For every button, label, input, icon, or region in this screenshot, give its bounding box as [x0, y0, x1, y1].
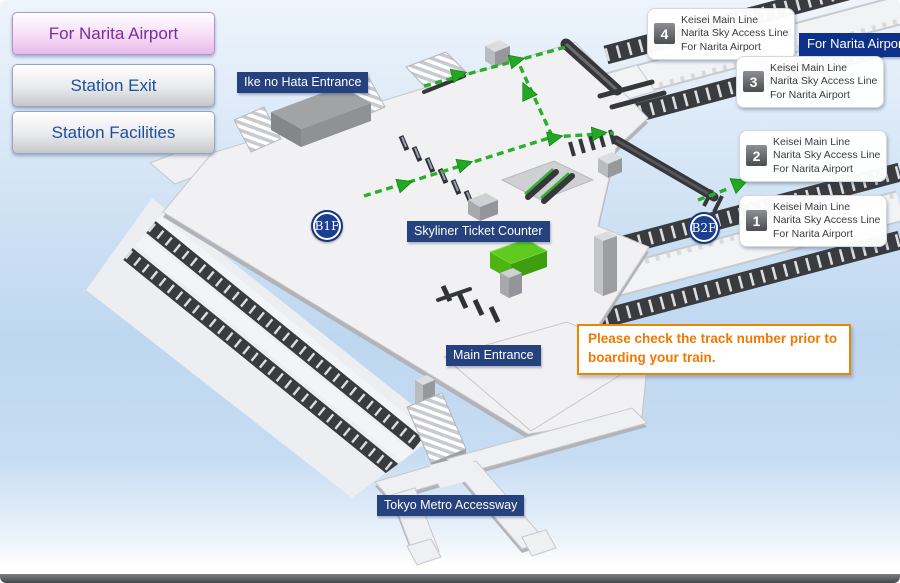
track-line-name: Narita Sky Access Line	[770, 75, 877, 88]
label-main-entrance: Main Entrance	[446, 345, 541, 366]
track-card-2: 2 Keisei Main Line Narita Sky Access Lin…	[739, 130, 887, 182]
track-number-badge: 2	[746, 145, 767, 166]
elevator-box-icon	[500, 268, 522, 298]
track-destination: For Narita Airport	[773, 228, 880, 241]
track-card-3: 3 Keisei Main Line Narita Sky Access Lin…	[736, 56, 884, 108]
label-ike-no-hata-entrance: Ike no Hata Entrance	[237, 72, 368, 93]
track-destination: For Narita Airport	[681, 41, 788, 54]
track-card-1: 1 Keisei Main Line Narita Sky Access Lin…	[739, 195, 887, 247]
track-line-name: Narita Sky Access Line	[681, 27, 788, 40]
label-skyliner-ticket-counter: Skyliner Ticket Counter	[407, 221, 550, 242]
track-line-name: Keisei Main Line	[773, 136, 880, 149]
track-number-badge: 3	[743, 71, 764, 92]
track-card-4: 4 Keisei Main Line Narita Sky Access Lin…	[647, 8, 795, 60]
station-facilities-button[interactable]: Station Facilities	[12, 111, 215, 154]
track-number-notice: Please check the track number prior to b…	[577, 324, 851, 375]
station-exit-button[interactable]: Station Exit	[12, 64, 215, 107]
track-card-text: Keisei Main Line Narita Sky Access Line …	[773, 136, 880, 176]
track-card-text: Keisei Main Line Narita Sky Access Line …	[770, 62, 877, 102]
track-line-name: Narita Sky Access Line	[773, 149, 880, 162]
floor-badge-b2f: B2F	[688, 212, 720, 244]
track-line-name: Narita Sky Access Line	[773, 214, 880, 227]
for-narita-airport-button[interactable]: For Narita Airport	[12, 12, 215, 55]
station-map-page: For Narita Airport Station Exit Station …	[0, 0, 900, 583]
platform-pillar	[594, 231, 617, 296]
track-card-text: Keisei Main Line Narita Sky Access Line …	[681, 14, 788, 54]
track-number-badge: 4	[654, 23, 675, 44]
footer-bar	[0, 574, 900, 583]
track-line-name: Keisei Main Line	[770, 62, 877, 75]
track-destination: For Narita Airport	[770, 89, 877, 102]
label-tokyo-metro-accessway: Tokyo Metro Accessway	[377, 495, 524, 516]
track-line-name: Keisei Main Line	[773, 201, 880, 214]
floor-badge-b1f: B1F	[311, 210, 343, 242]
track-destination: For Narita Airport	[773, 163, 880, 176]
track-card-text: Keisei Main Line Narita Sky Access Line …	[773, 201, 880, 241]
track-line-name: Keisei Main Line	[681, 14, 788, 27]
track-number-badge: 1	[746, 210, 767, 231]
label-for-narita-airport: For Narita Airport	[799, 33, 900, 57]
